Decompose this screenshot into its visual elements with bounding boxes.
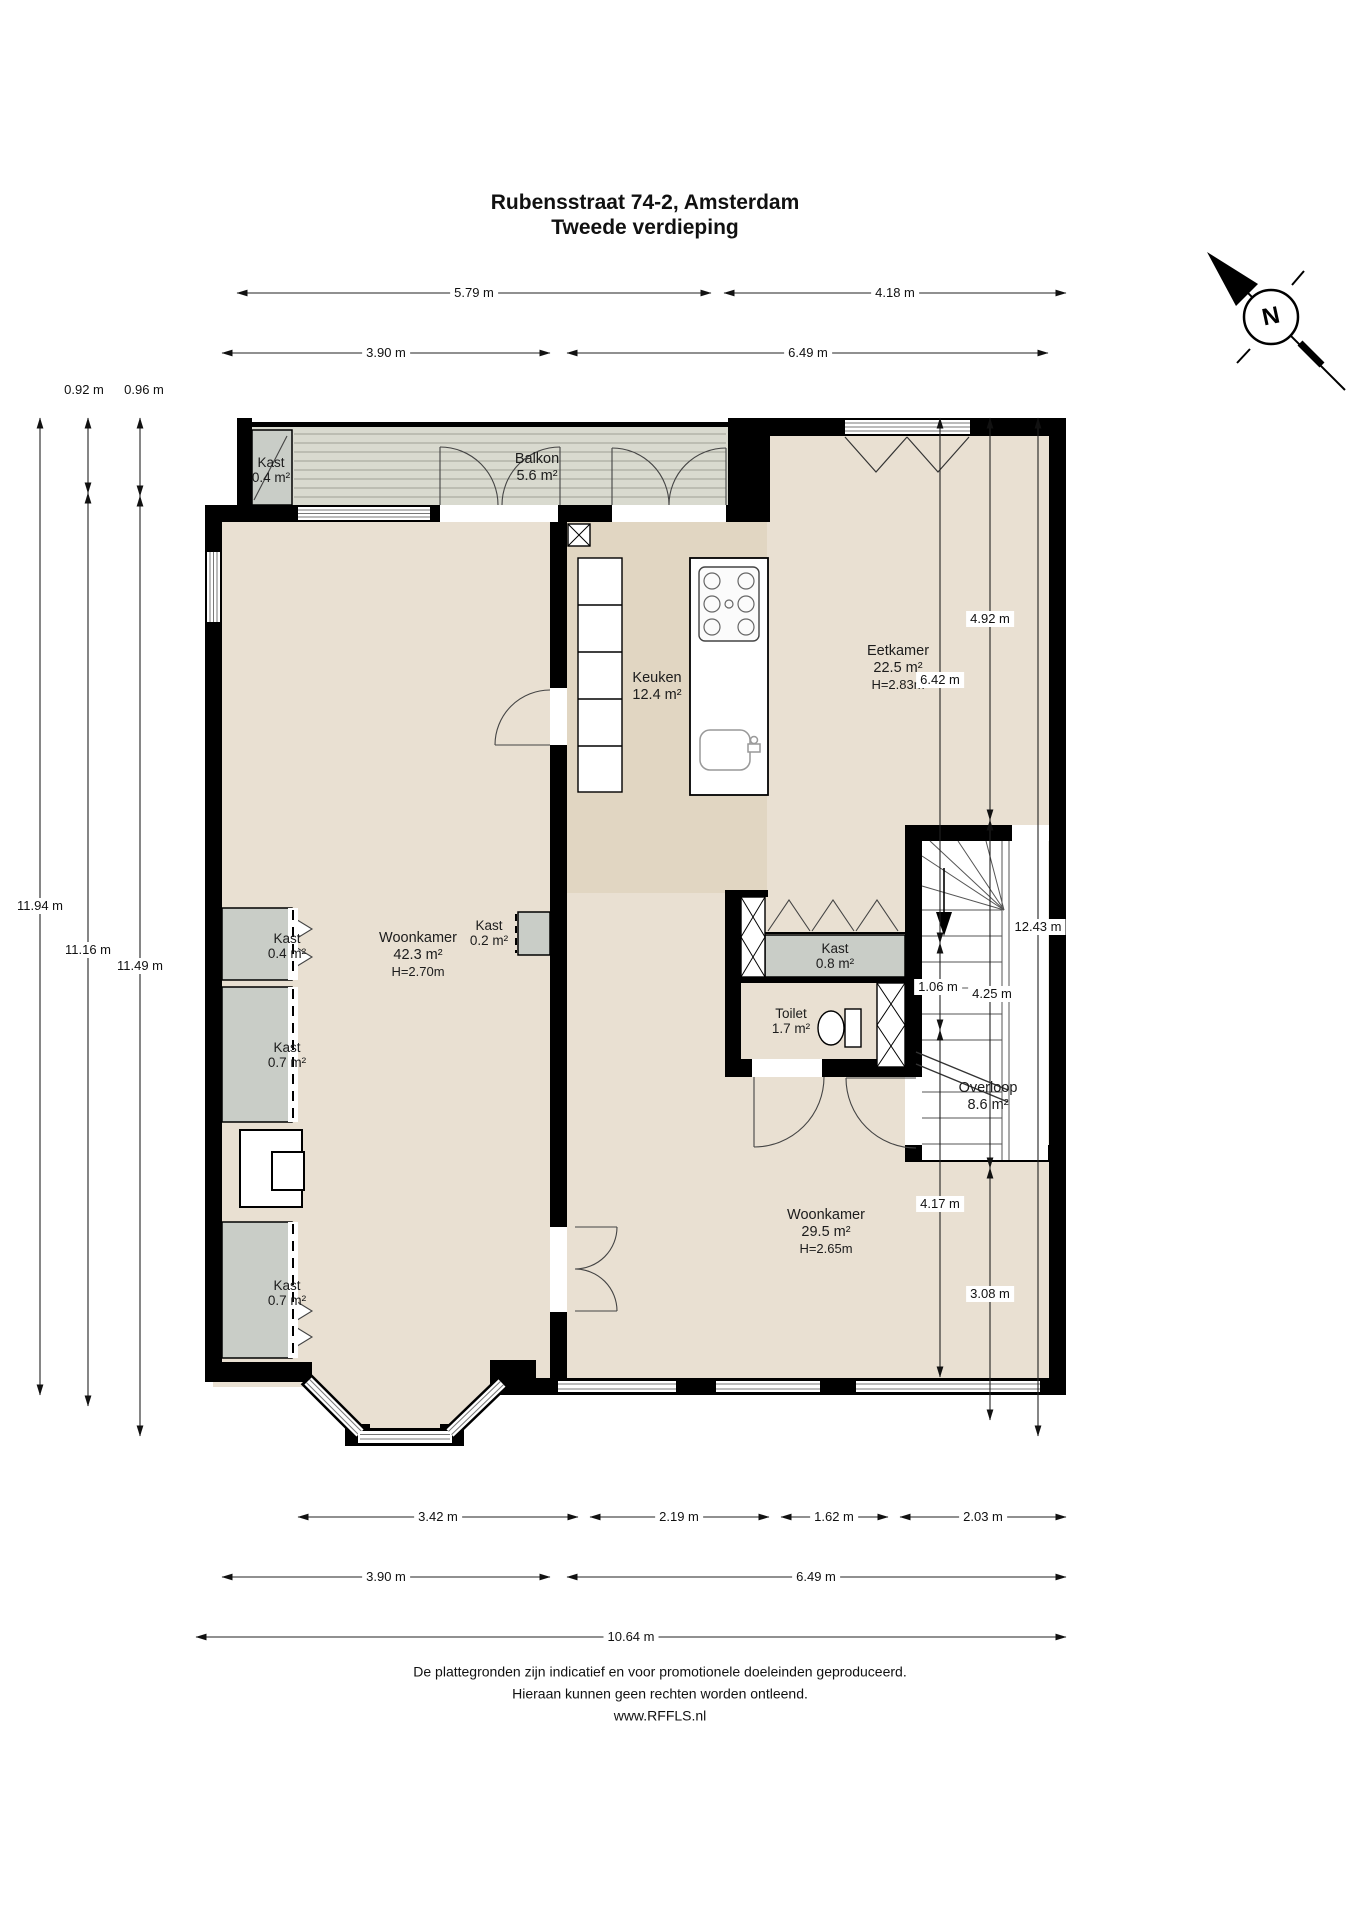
- room-label-keuken: Keuken 12.4 m²: [632, 670, 681, 704]
- room-label-kast-hal: Kast 0.8 m²: [816, 941, 854, 971]
- floorplan-page: Rubensstraat 74-2, Amsterdam Tweede verd…: [0, 0, 1358, 1920]
- chimney-nook: [240, 1130, 304, 1207]
- dim-bottom-7: 10.64 m: [604, 1629, 659, 1645]
- room-label-balkon: Balkon 5.6 m²: [515, 451, 559, 485]
- room-label-kast-klein: Kast 0.2 m²: [470, 918, 508, 948]
- room-label-toilet: Toilet 1.7 m²: [772, 1006, 810, 1036]
- room-label-kast-links-onder: Kast 0.7 m²: [268, 1278, 306, 1308]
- room-label-kast-balkon: Kast 0.4 m²: [252, 455, 290, 485]
- dim-right-2: 6.42 m: [916, 672, 964, 688]
- dim-top-2: 4.18 m: [871, 285, 919, 301]
- plan-title: Rubensstraat 74-2, Amsterdam: [491, 191, 800, 215]
- kitchen-counter: [578, 558, 622, 792]
- dim-bottom-5: 3.90 m: [362, 1569, 410, 1585]
- dim-right-5: 1.06 m: [914, 979, 962, 995]
- dim-left-4: 11.49 m: [113, 958, 167, 974]
- dim-right-6: 4.17 m: [916, 1196, 964, 1212]
- room-label-woonkamer-achter: Woonkamer 29.5 m² H=2.65m: [787, 1207, 865, 1257]
- dim-bottom-3: 1.62 m: [810, 1509, 858, 1525]
- dim-left-1: 0.92 m: [60, 382, 108, 398]
- dim-right-3: 12.43 m: [1011, 919, 1066, 935]
- dim-bottom-1: 3.42 m: [414, 1509, 462, 1525]
- room-label-kast-links-midden: Kast 0.7 m²: [268, 1040, 306, 1070]
- dim-top-1: 5.79 m: [450, 285, 498, 301]
- dim-left-2: 0.96 m: [120, 382, 168, 398]
- room-label-kast-links-boven: Kast 0.4 m²: [268, 931, 306, 961]
- footer-disclaimer-1: De plattegronden zijn indicatief en voor…: [413, 1662, 906, 1683]
- dim-left-3: 11.16 m: [61, 942, 115, 958]
- dim-top-3: 3.90 m: [362, 345, 410, 361]
- room-label-woonkamer-voor: Woonkamer 42.3 m² H=2.70m: [379, 930, 457, 980]
- floorplan-drawing: [0, 0, 1358, 1920]
- dim-right-7: 3.08 m: [966, 1286, 1014, 1302]
- toilet-icon: [818, 1009, 861, 1047]
- footer-disclaimer-2: Hieraan kunnen geen rechten worden ontle…: [512, 1684, 808, 1705]
- dim-right-1: 4.92 m: [966, 611, 1014, 627]
- dim-bottom-2: 2.19 m: [655, 1509, 703, 1525]
- dim-right-4: 4.25 m: [968, 986, 1016, 1002]
- room-label-overloop: Overloop 8.6 m²: [959, 1080, 1018, 1114]
- footer-website: www.RFFLS.nl: [614, 1706, 707, 1727]
- stove-icon: [699, 567, 759, 641]
- dim-bottom-6: 6.49 m: [792, 1569, 840, 1585]
- plan-subtitle: Tweede verdieping: [551, 216, 739, 240]
- dim-top-4: 6.49 m: [784, 345, 832, 361]
- kitchen-island: [690, 558, 768, 795]
- dim-bottom-4: 2.03 m: [959, 1509, 1007, 1525]
- dim-left-5: 11.94 m: [13, 898, 67, 914]
